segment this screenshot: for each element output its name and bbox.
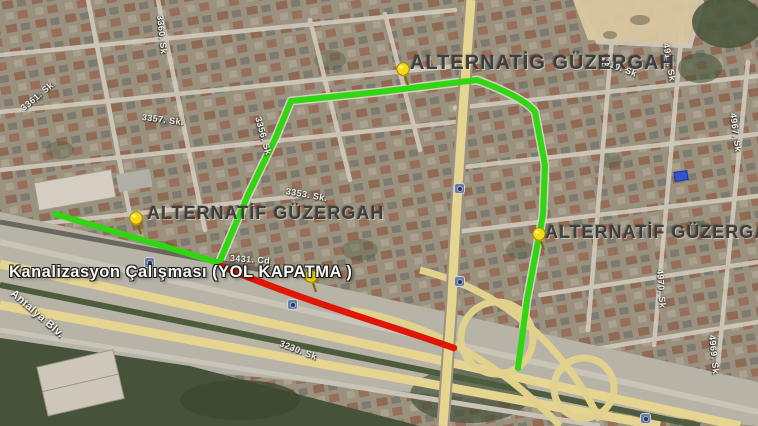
- alternative-route-label-left: ALTERNATİF GÜZERGAH: [147, 203, 384, 224]
- street-label: 3356. Sk: [253, 116, 273, 156]
- street-label: Antalya Blv.: [8, 287, 66, 340]
- street-label: 3353. Sk.: [285, 186, 328, 203]
- street-label: 3230. Sk: [278, 338, 318, 361]
- street-label: 4969. Sk: [707, 334, 721, 374]
- satellite-map[interactable]: 3360. Sk3361. Sk3357. Sk.3356. Sk3353. S…: [0, 0, 758, 426]
- alternative-route-label-right: ALTERNATİF GÜZERGAN: [545, 222, 758, 243]
- street-label: 4970. Sk: [655, 269, 668, 309]
- alternative-route-label-top: ALTERNATİG GÜZERGAH: [410, 52, 675, 75]
- street-label: 3360. Sk: [155, 14, 169, 54]
- street-label: 3357. Sk.: [141, 112, 184, 127]
- street-label: 4967. Sk: [728, 112, 743, 152]
- road-closure-label: Kanalizasyon Çalışması (YOL KAPATMA ): [9, 263, 352, 282]
- street-label: 3361. Sk: [19, 80, 55, 113]
